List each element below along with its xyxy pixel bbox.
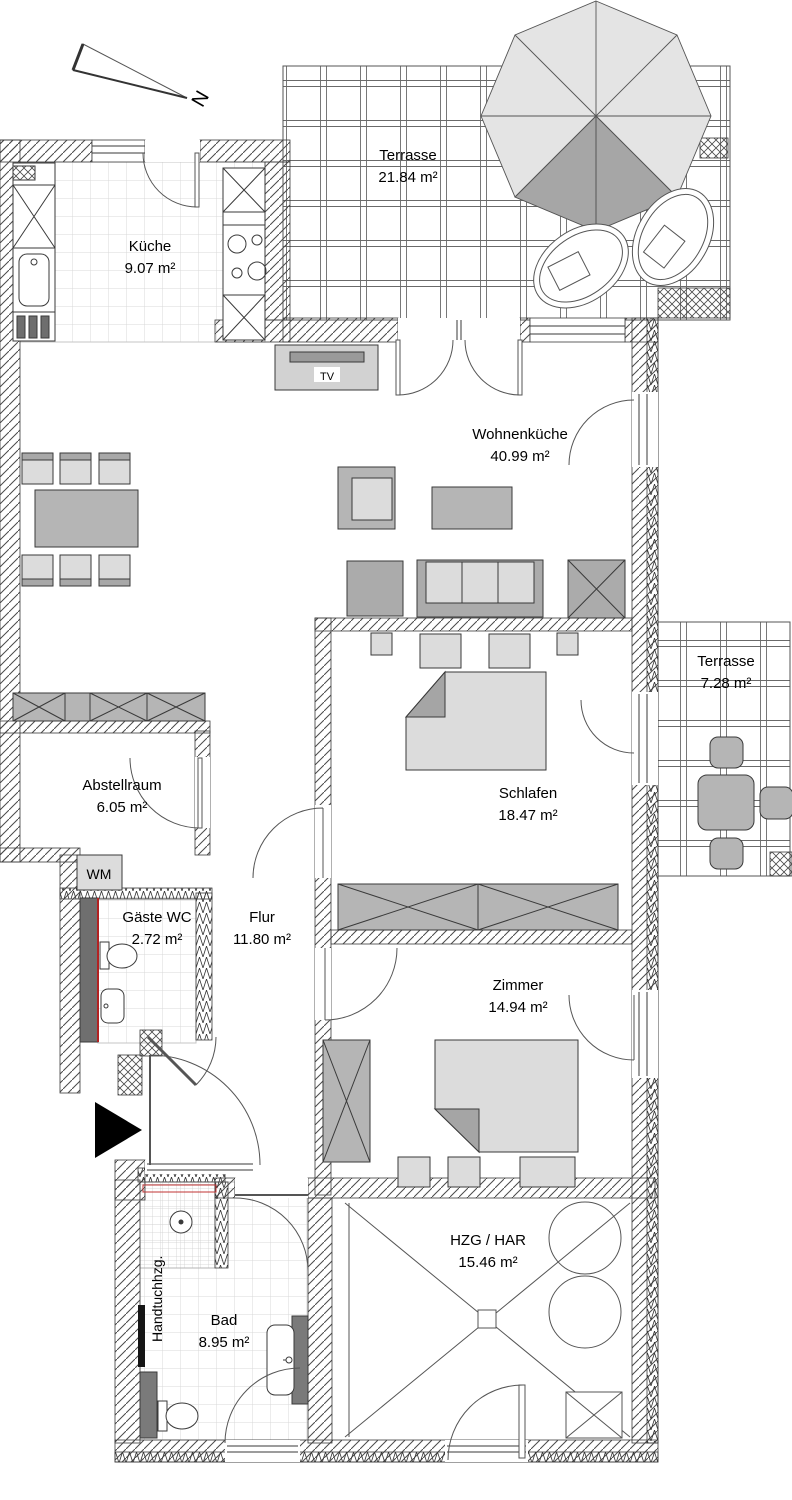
terrasse-top-area: 21.84 m² (378, 169, 437, 186)
wall (200, 140, 290, 162)
door-leaf (518, 340, 522, 395)
compass-north-label: N (188, 87, 214, 111)
wohnenkueche-area: 40.99 m² (490, 448, 549, 465)
tv-label: TV (320, 371, 335, 383)
door-swing (325, 948, 397, 1020)
door-swing (569, 995, 634, 1060)
pillow (489, 634, 530, 668)
small-table (448, 1157, 480, 1187)
zimmer-window (632, 990, 658, 1078)
wall (265, 162, 290, 320)
kueche-area: 9.07 m² (125, 260, 176, 277)
kueche-name: Küche (129, 238, 172, 255)
wall (283, 318, 398, 342)
small-table (520, 1157, 575, 1187)
bad-name: Bad (211, 1312, 238, 1329)
dishwasher-bars (29, 316, 37, 338)
terrace-chair (710, 737, 743, 768)
wall-insulation (115, 1452, 658, 1462)
nightstand (557, 633, 578, 655)
kitchen-counter-right (223, 168, 265, 340)
toilet (166, 1403, 198, 1429)
entrance-door-gap (145, 1160, 255, 1174)
zimmer-door-gap (315, 948, 331, 1020)
door-leaf (519, 1385, 525, 1458)
wall (658, 288, 730, 318)
tv-screen (290, 352, 364, 362)
sofa-cushion (426, 562, 462, 603)
door-leaf (148, 1037, 196, 1085)
kueche-window (92, 140, 145, 162)
shower-drain-center (179, 1220, 184, 1225)
bad-bottom-door-gap (225, 1440, 300, 1462)
floor-plan: N Terrasse 21.84 m² Küche 9.07 m² Wohnen… (0, 0, 792, 1500)
shower-partition-wall (215, 1182, 228, 1268)
kitchen-appliance (13, 166, 35, 180)
gaeste-wc-area: 2.72 m² (132, 931, 183, 948)
wall (140, 1030, 162, 1056)
bed-fold (406, 672, 445, 717)
dishwasher-bars (41, 316, 49, 338)
door-leaf (396, 340, 400, 395)
bath-sink (267, 1325, 294, 1395)
schlafen-terrace-door (632, 692, 658, 785)
bath-cabinet (140, 1372, 157, 1438)
chair-back (22, 453, 53, 460)
wc-counter (80, 898, 98, 1042)
dishwasher-bars (17, 316, 25, 338)
floor-drain (478, 1310, 496, 1328)
hzg-har-name: HZG / HAR (450, 1232, 526, 1249)
zimmer-area: 14.94 m² (488, 999, 547, 1016)
kitchen-counter-left (13, 163, 55, 341)
chair-back (99, 579, 130, 586)
schlafen-furniture (338, 633, 618, 930)
kueche-door-gap (145, 140, 200, 162)
door-leaf (198, 758, 202, 828)
terrace-chair (710, 838, 743, 869)
nightstand (371, 633, 392, 655)
wall (308, 1178, 655, 1198)
wall (308, 1198, 332, 1443)
entrance-arrow (95, 1102, 142, 1158)
wall (520, 318, 530, 342)
door-swing (465, 340, 520, 395)
wohnenkueche-name: Wohnenküche (472, 426, 568, 443)
door-swing (398, 340, 453, 395)
wall (118, 1055, 142, 1095)
chair-back (60, 453, 91, 460)
wall (315, 618, 632, 631)
bed-schlafen (406, 672, 546, 770)
flur-area: 11.80 m² (233, 931, 291, 948)
chair-back (99, 453, 130, 460)
boiler-tank (549, 1276, 621, 1348)
door-leaf (195, 153, 199, 207)
coffee-table (432, 487, 512, 529)
zimmer-furniture (323, 1040, 578, 1187)
side-table (347, 561, 403, 616)
terrasse-right-name: Terrasse (697, 653, 755, 670)
wc-counter-edge (97, 898, 99, 1042)
terrace-table (698, 775, 754, 830)
wm-label: WM (87, 866, 112, 882)
schlafen-area: 18.47 m² (498, 807, 557, 824)
bad-area: 8.95 m² (199, 1334, 250, 1351)
compass: N (73, 44, 214, 111)
handtuchheizung-label: Handtuchhzg. (149, 1256, 165, 1342)
bed-zimmer (435, 1040, 578, 1152)
kitchen-sink (19, 254, 49, 306)
bed-fold (435, 1109, 479, 1152)
terrasse-top-name: Terrasse (379, 147, 437, 164)
abstellraum-name: Abstellraum (82, 777, 161, 794)
wall (0, 721, 210, 733)
door-swing (253, 808, 323, 878)
hzg-door-gap (445, 1440, 528, 1462)
terrasse-right-area: 7.28 m² (701, 675, 752, 692)
flur-name: Flur (249, 909, 275, 926)
gaeste-wc-name: Gäste WC (122, 909, 191, 926)
terrace-door-gap (398, 318, 520, 342)
armchair-seat (352, 478, 392, 520)
abstellraum-area: 6.05 m² (97, 799, 148, 816)
towel-radiator (138, 1305, 145, 1367)
hzg-har-area: 15.46 m² (458, 1254, 517, 1271)
wall (115, 1180, 140, 1443)
wall-insulation (196, 893, 212, 1040)
compass-needle (73, 44, 187, 98)
right-opening-1 (632, 392, 658, 467)
terrace-chair (760, 787, 792, 819)
wall (770, 852, 792, 876)
door-swing (150, 1055, 260, 1165)
wall-insulation (647, 318, 658, 1443)
door-swing (569, 400, 634, 465)
boiler-tank (549, 1202, 621, 1274)
wall (331, 930, 632, 944)
chair-back (22, 579, 53, 586)
small-table (398, 1157, 430, 1187)
door-swing (196, 1037, 216, 1085)
door-swing (581, 700, 634, 753)
zimmer-name: Zimmer (493, 977, 544, 994)
chair-back (60, 579, 91, 586)
sofa-cushion (498, 562, 534, 603)
pillow (420, 634, 461, 668)
dining-table (35, 490, 138, 547)
wohnkueche-window (530, 318, 625, 342)
schlafen-name: Schlafen (499, 785, 557, 802)
floor-plan-drawing: N Terrasse 21.84 m² Küche 9.07 m² Wohnen… (0, 0, 792, 1500)
sofa-cushion (462, 562, 498, 603)
wall (700, 138, 728, 158)
